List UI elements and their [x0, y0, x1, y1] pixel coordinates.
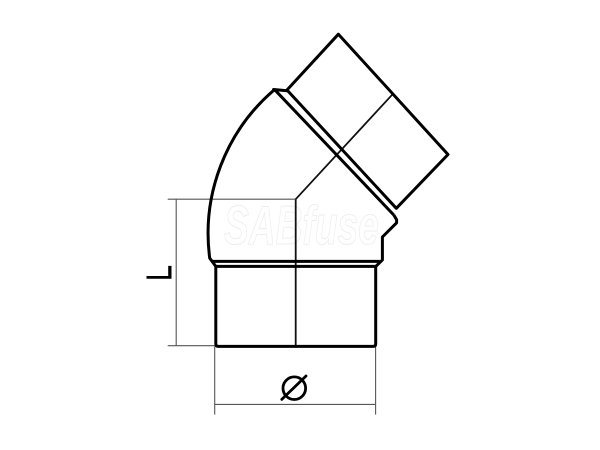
svg-text:SABfuse: SABfuse [224, 194, 379, 256]
